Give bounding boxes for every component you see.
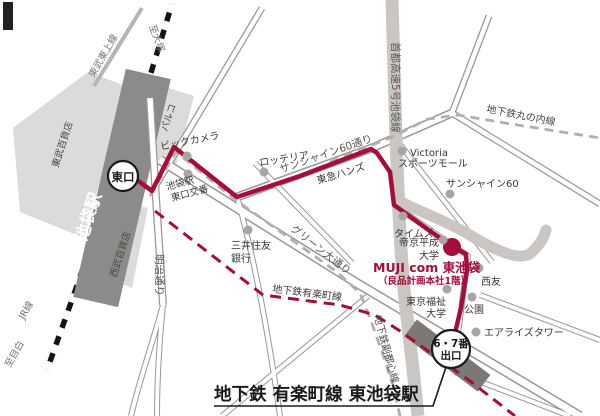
map-canvas: 至大塚 東武東上線 至目白 JR線 東武百貨店 パルコ 西武百貨店 池袋駅 明治…: [0, 0, 600, 416]
road-fills: [131, 8, 600, 416]
airrise-dot: [472, 328, 481, 337]
rail-end-mark: [3, 2, 13, 30]
access-map: 至大塚 東武東上線 至目白 JR線 東武百貨店 パルコ 西武百貨店 池袋駅 明治…: [0, 0, 600, 416]
victoria-label-line2: スポーツモール: [398, 158, 468, 170]
park-dot: [468, 293, 477, 302]
victoria-label-line1: Victoria: [410, 148, 448, 159]
sunshine60-label: サンシャイン60: [446, 178, 519, 190]
fukutoshin-line-label: 地下鉄副都心線: [371, 313, 402, 384]
smbc-label-line1: 三井住友: [231, 239, 271, 252]
victoria-dot: [398, 147, 407, 156]
fukushi-univ-label-line2: 大学: [426, 307, 446, 320]
to-mejiro-label: 至目白: [2, 339, 27, 370]
smbc-dot: [244, 226, 253, 235]
muji-title-label: MUJI com 東池袋: [373, 260, 481, 275]
exit-6-7-badge: 6・7番 出口: [432, 330, 470, 368]
expressway-label: 首都高速5号池袋線: [389, 42, 402, 133]
teikyo-univ-dot: [439, 236, 448, 245]
east-exit-badge: 東口: [108, 161, 138, 191]
sunshine60-dot: [446, 190, 455, 199]
airrise-tower-label: エアライズタワー: [484, 326, 564, 339]
times-dot: [399, 212, 408, 221]
smbc-label-line2: 銀行: [231, 252, 251, 265]
teikyo-univ-label-line1: 帝京平成: [399, 236, 439, 249]
exit-6-7-label-line2: 出口: [441, 349, 462, 362]
road-casings: [131, 8, 600, 416]
jr-line-label: JR線: [16, 299, 37, 323]
muji-subtitle-label: （良品計画本社1階）: [378, 275, 470, 287]
bic-camera-dot: [183, 152, 192, 161]
exit-6-7-label-line1: 6・7番: [433, 337, 469, 350]
caption-text: 地下鉄 有楽町線 東池袋駅: [214, 384, 419, 405]
koban-label: 池袋駅 東口交番: [165, 171, 210, 205]
meiji-dori-label: 明治通り: [153, 254, 166, 296]
park-label: 公園: [464, 304, 484, 316]
fukushi-univ-label-line1: 東京福祉: [406, 295, 446, 308]
east-exit-label: 東口: [112, 170, 135, 184]
seiyu-label: 西友: [481, 275, 501, 288]
